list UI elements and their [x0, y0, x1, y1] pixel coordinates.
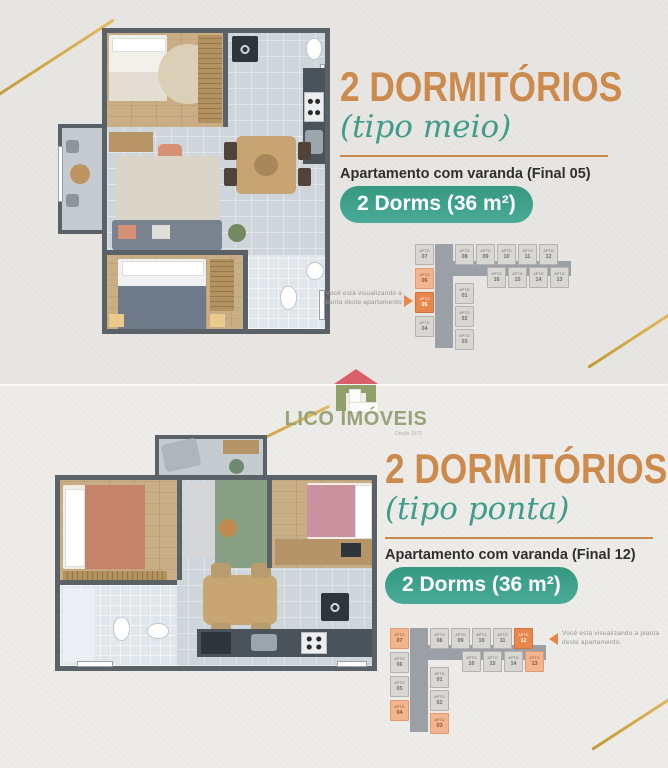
apto-unit-09: APTO09	[451, 628, 470, 649]
apto-unit-08: APTO08	[430, 628, 449, 649]
dining-chair	[211, 563, 231, 578]
apto-unit-03: APTO03	[455, 329, 474, 350]
bed-pillows	[122, 261, 204, 276]
wardrobe	[210, 259, 234, 311]
tv	[341, 543, 361, 557]
apto-unit-01: APTO01	[430, 667, 449, 688]
table-centerpiece	[254, 154, 278, 176]
apto-unit-05: APTO05	[390, 676, 409, 697]
kitchen-window	[337, 661, 367, 667]
apto-unit-07: APTO07	[390, 628, 409, 649]
bed-pillows	[355, 485, 372, 539]
apto-unit-05: APTO05	[415, 292, 434, 313]
apto-unit-08: APTO08	[455, 244, 474, 265]
bed-blanket	[85, 485, 145, 569]
stove-cooktop	[301, 632, 327, 654]
nightstand-lamp	[210, 314, 225, 327]
pointer-arrow-icon	[404, 295, 413, 307]
apartment-description: Apartamento com varanda (Final 12)	[385, 547, 636, 563]
section-title: 2 DORMITÓRIOS	[340, 66, 622, 108]
bathroom-sink	[306, 262, 324, 280]
viewing-note: Você está visualizando a planta deste ap…	[318, 290, 402, 308]
apto-unit-11: APTO11	[493, 628, 512, 649]
apartment-description: Apartamento com varanda (Final 05)	[340, 166, 591, 182]
balcony-table	[70, 164, 90, 184]
real-estate-flyer: 2 DORMITÓRIOS (tipo meio) Apartamento co…	[0, 0, 668, 768]
shower-box	[63, 588, 95, 662]
kitchen-cabinet	[201, 632, 231, 654]
accent-rule	[340, 155, 608, 157]
bathroom-window	[77, 661, 113, 667]
brand-name: LICO IMÓVEIS	[240, 408, 472, 431]
pointer-arrow-icon	[549, 633, 558, 645]
building-map-ponta: APTO07APTO06APTO05APTO04APTO08APTO09APTO…	[388, 626, 548, 736]
desk	[109, 132, 153, 152]
bed-blanket	[307, 485, 355, 537]
dining-chair	[224, 142, 237, 160]
stove-cooktop	[304, 92, 324, 122]
dorms-area-badge: 2 Dorms (36 m²)	[340, 186, 533, 223]
balcony-chair	[66, 140, 79, 153]
washing-machine	[232, 36, 258, 62]
apto-unit-14: APTO14	[529, 267, 548, 288]
sofa-cushion	[152, 225, 170, 239]
apto-unit-15: APTO15	[508, 267, 527, 288]
apto-unit-11: APTO11	[518, 244, 537, 265]
apto-unit-03: APTO03	[430, 713, 449, 734]
wardrobe	[198, 35, 222, 123]
toilet	[280, 286, 297, 310]
apto-unit-16: APTO16	[487, 267, 506, 288]
side-table	[219, 519, 237, 537]
apto-unit-10: APTO10	[472, 628, 491, 649]
apto-unit-15: APTO15	[483, 651, 502, 672]
apto-unit-04: APTO04	[415, 316, 434, 337]
balcony-bench	[223, 440, 259, 454]
toilet	[113, 617, 130, 641]
floor-plan-tipo-meio	[58, 28, 330, 334]
plant	[228, 224, 246, 242]
apto-unit-12: APTO12	[539, 244, 558, 265]
apto-unit-04: APTO04	[390, 700, 409, 721]
accent-rule	[385, 537, 653, 539]
apto-unit-12: APTO12	[514, 628, 533, 649]
logo-roof	[334, 369, 378, 384]
corridor	[435, 244, 453, 348]
apto-unit-01: APTO01	[455, 283, 474, 304]
nightstand-lamp	[109, 314, 124, 327]
apto-unit-02: APTO02	[430, 690, 449, 711]
apto-unit-14: APTO14	[504, 651, 523, 672]
section-title: 2 DORMITÓRIOS	[385, 448, 667, 490]
section-subtitle: (tipo ponta)	[385, 494, 569, 525]
building-map-meio: APTO07APTO06APTO05APTO04APTO08APTO09APTO…	[413, 242, 573, 352]
sofa	[185, 483, 213, 557]
dining-chair	[298, 142, 311, 160]
apto-unit-10: APTO10	[497, 244, 516, 265]
wc-toilet	[306, 38, 322, 60]
bed-pillows	[65, 489, 85, 567]
balcony-window	[58, 146, 63, 202]
apto-unit-13: APTO13	[525, 651, 544, 672]
section-subtitle: (tipo meio)	[340, 112, 511, 143]
viewing-note: Você está visualizando a planta deste ap…	[562, 630, 668, 648]
lico-logo-icon	[333, 369, 379, 411]
interior-wall	[177, 480, 182, 580]
bed-blanket	[118, 286, 206, 329]
apto-unit-06: APTO06	[390, 652, 409, 673]
dining-chair	[224, 168, 237, 186]
washing-machine	[321, 593, 349, 621]
balcony-pouf	[229, 459, 244, 474]
apto-unit-06: APTO06	[415, 268, 434, 289]
apto-unit-16: APTO16	[462, 651, 481, 672]
bed-pillows	[112, 38, 166, 52]
apto-unit-13: APTO13	[550, 267, 569, 288]
corridor	[410, 628, 428, 732]
apto-unit-02: APTO02	[455, 306, 474, 327]
interior-wall	[223, 33, 228, 127]
dorms-area-badge: 2 Dorms (36 m²)	[385, 567, 578, 604]
floor-plan-tipo-ponta	[55, 435, 377, 671]
dining-table	[203, 575, 277, 625]
kitchen-sink	[251, 634, 277, 651]
balcony-chair	[66, 194, 79, 207]
apto-unit-07: APTO07	[415, 244, 434, 265]
sofa-cushion	[118, 225, 136, 239]
apto-unit-09: APTO09	[476, 244, 495, 265]
bathroom-sink	[147, 623, 169, 639]
dining-chair	[298, 168, 311, 186]
